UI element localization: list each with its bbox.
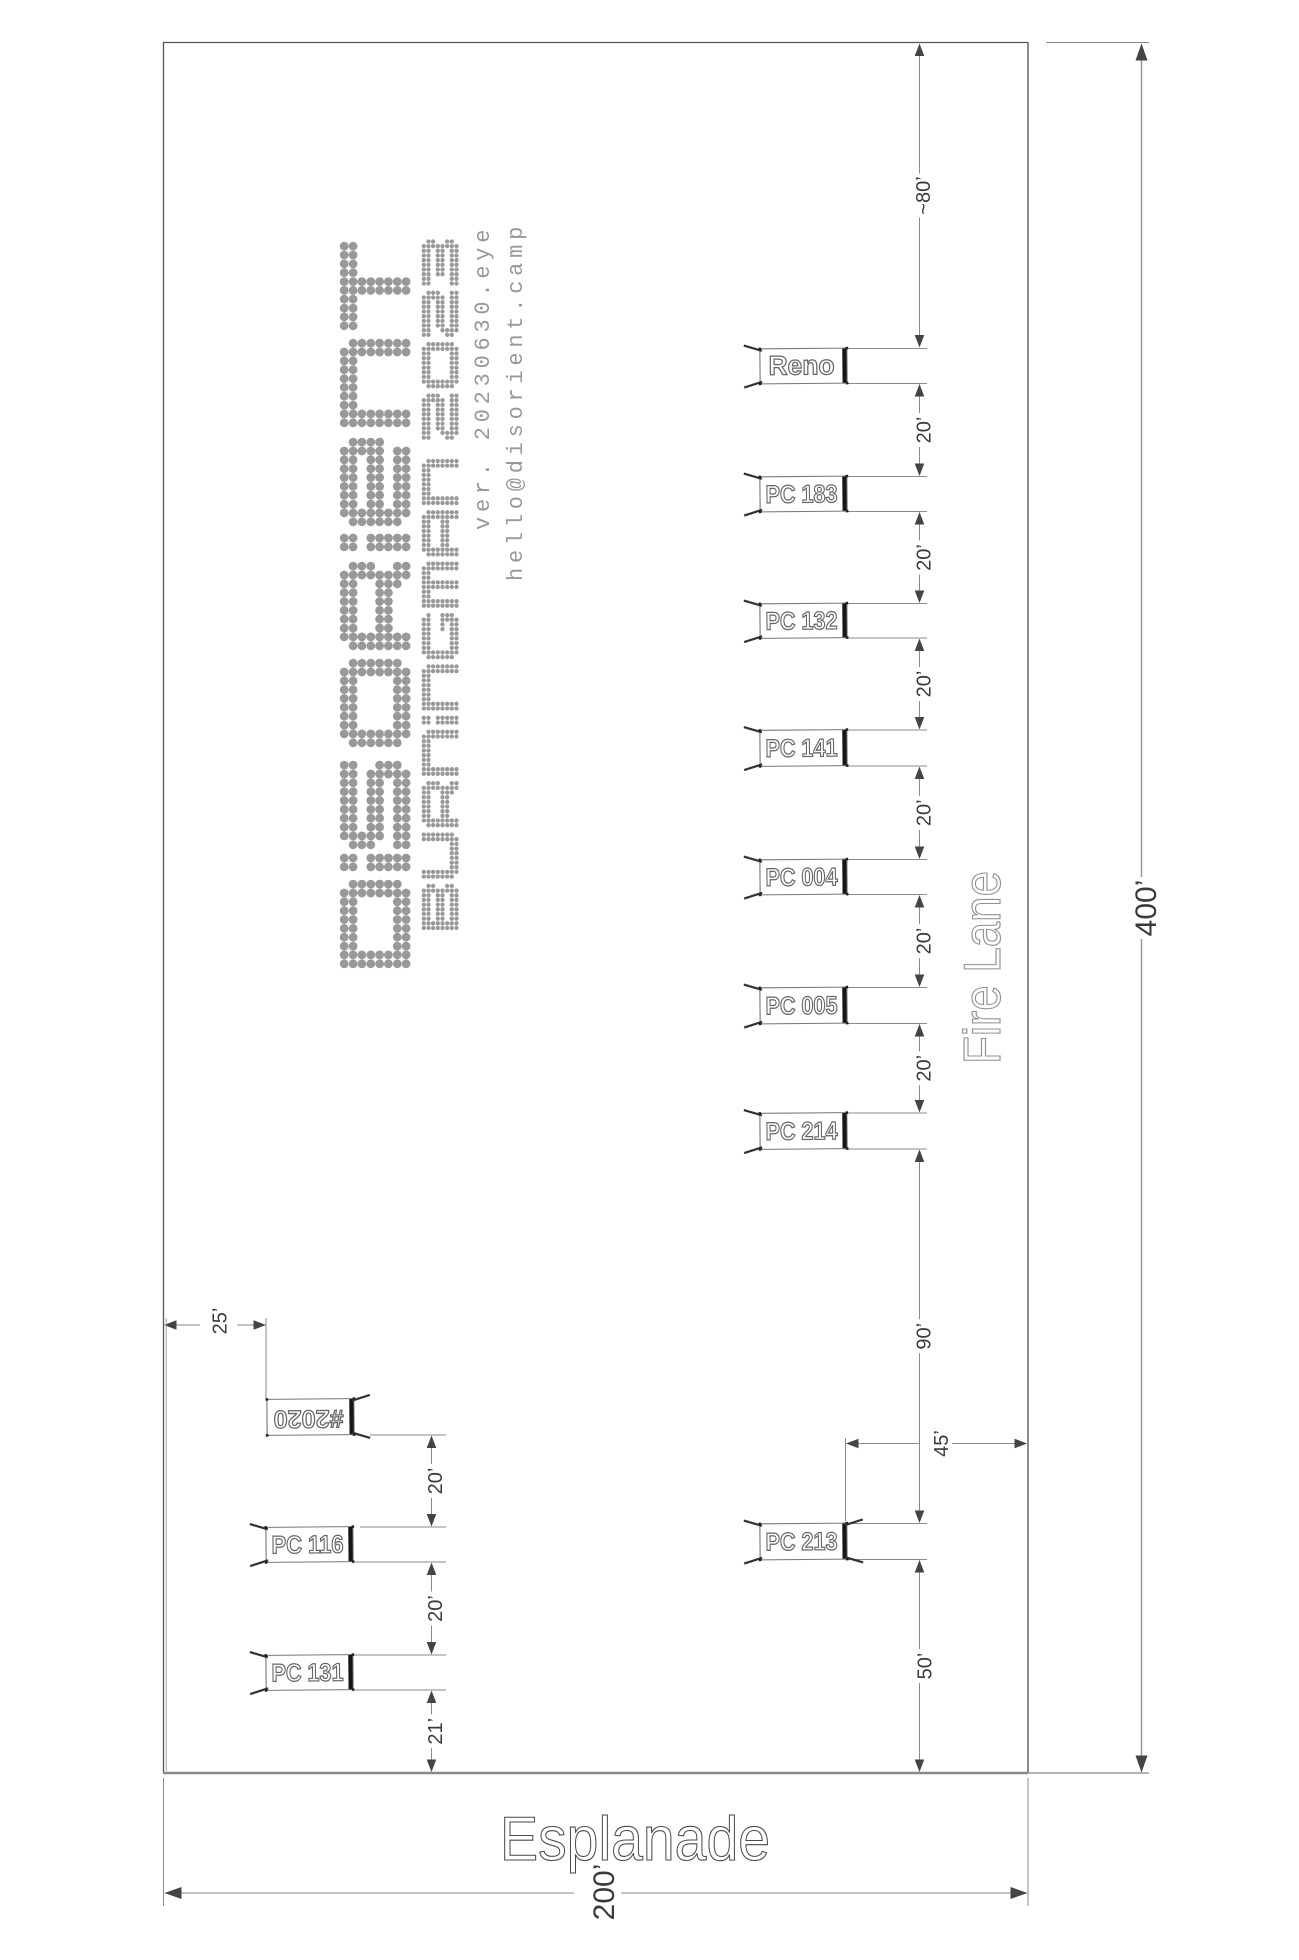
svg-text:50’: 50’	[915, 1653, 937, 1680]
svg-text:ver. 20230630.eye: ver. 20230630.eye	[471, 225, 496, 530]
svg-text:Fire Lane: Fire Lane	[954, 871, 1012, 1064]
svg-text:20’: 20’	[914, 1055, 936, 1082]
svg-text:20’: 20’	[914, 799, 936, 826]
svg-text:20’: 20’	[914, 671, 936, 698]
svg-text:hello@disorient.camp: hello@disorient.camp	[504, 222, 529, 581]
svg-text:#2020: #2020	[273, 1404, 343, 1433]
svg-text:90’: 90’	[914, 1323, 936, 1350]
svg-text:PC 004: PC 004	[765, 863, 837, 892]
svg-text:Esplanade: Esplanade	[500, 1805, 770, 1874]
svg-text:PC 131: PC 131	[271, 1659, 343, 1688]
svg-text:45’: 45’	[931, 1430, 953, 1457]
svg-text:Reno: Reno	[768, 350, 834, 381]
svg-text:PC 005: PC 005	[765, 992, 837, 1021]
svg-text:21’: 21’	[425, 1718, 447, 1745]
svg-text:20’: 20’	[425, 1468, 447, 1495]
svg-text:25’: 25’	[210, 1308, 232, 1335]
svg-text:PC 214: PC 214	[765, 1117, 837, 1146]
svg-text:20’: 20’	[914, 417, 936, 444]
svg-text:20’: 20’	[914, 544, 936, 571]
svg-text:~80’: ~80’	[913, 176, 935, 214]
svg-text:PC 183: PC 183	[765, 480, 837, 509]
svg-text:400’: 400’	[1130, 880, 1163, 937]
svg-text:PC 116: PC 116	[271, 1531, 343, 1560]
svg-text:PC 141: PC 141	[765, 734, 837, 763]
svg-text:20’: 20’	[914, 928, 936, 955]
svg-text:PC 213: PC 213	[765, 1528, 837, 1557]
svg-text:20’: 20’	[425, 1595, 447, 1622]
svg-text:PC 132: PC 132	[765, 607, 837, 636]
